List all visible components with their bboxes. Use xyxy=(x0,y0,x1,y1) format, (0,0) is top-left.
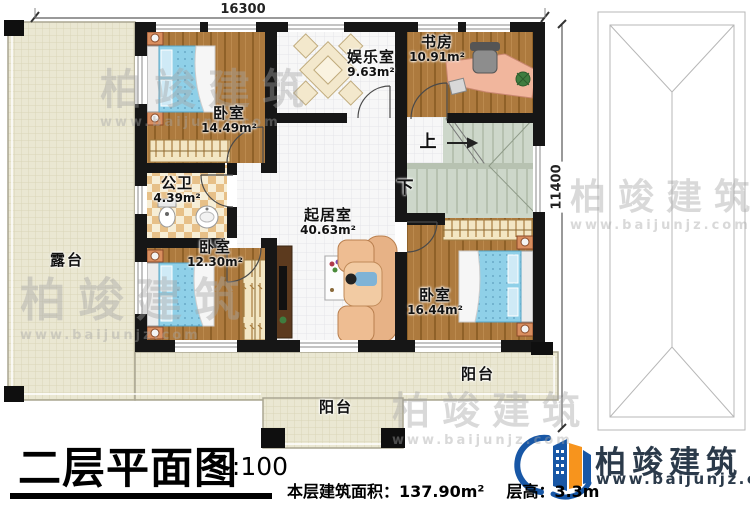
tv xyxy=(279,266,287,310)
bed-bedroom-right xyxy=(459,236,533,336)
floor-height-value: 3.3m xyxy=(554,482,599,501)
room-label-entertainment: 娱乐室 9.63m² xyxy=(347,50,395,78)
label-balcony-right: 阳台 xyxy=(461,367,495,383)
drawing-title: 二层平面图 xyxy=(18,434,238,496)
room-label-living: 起居室 40.63m² xyxy=(300,208,356,236)
adjacent-roof-outline xyxy=(598,12,745,430)
drawing-scale: 1:100 xyxy=(216,452,288,481)
terrace-floor xyxy=(8,22,135,400)
label-stairs-up: 上 xyxy=(420,134,437,152)
label-stairs-down: 下 xyxy=(397,180,414,198)
brand-website: www.baijunjz.com xyxy=(596,470,750,488)
floor-height-label: 层高： xyxy=(506,482,554,501)
room-label-study: 书房 10.91m² xyxy=(409,35,465,63)
label-balcony-bottom: 阳台 xyxy=(319,400,353,416)
floor-stats: 本层建筑面积：137.90m²层高：3.3m xyxy=(287,478,599,502)
dimension-height: 11400 xyxy=(550,161,565,212)
label-terrace: 露台 xyxy=(50,253,84,269)
sofa xyxy=(338,236,397,342)
floor-area-label: 本层建筑面积： xyxy=(287,482,399,501)
room-label-bathroom: 公卫 4.39m² xyxy=(153,176,200,204)
dimension-width: 16300 xyxy=(217,2,268,17)
floor-plan-canvas: 柏竣建筑 www.baijunjz.com 柏竣建筑 www.baijunjz.… xyxy=(0,0,750,505)
room-label-bedroom-right: 卧室 16.44m² xyxy=(407,288,463,316)
floor-area-value: 137.90m² xyxy=(399,482,484,501)
room-label-bedroom-top: 卧室 14.49m² xyxy=(201,106,257,134)
title-underline xyxy=(10,493,272,499)
room-label-bedroom-left: 卧室 12.30m² xyxy=(187,240,243,268)
